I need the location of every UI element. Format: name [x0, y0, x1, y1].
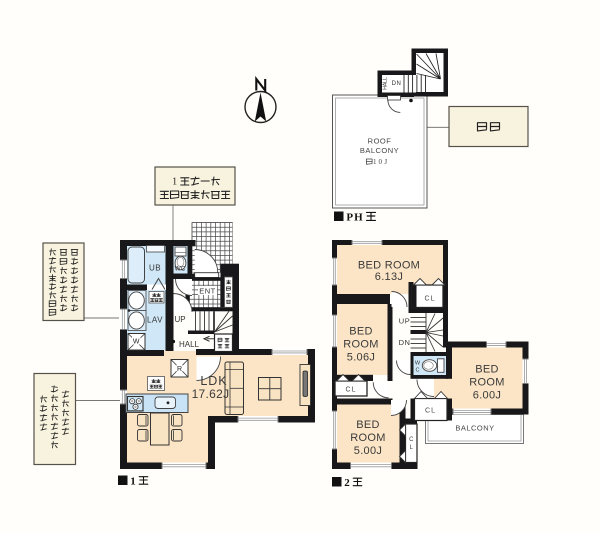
svg-text:1: 1 — [172, 177, 177, 188]
svg-text:BED: BED — [356, 419, 380, 431]
svg-text:ROOF: ROOF — [368, 137, 392, 146]
svg-text:R: R — [177, 366, 182, 373]
svg-text:LDK: LDK — [200, 374, 227, 388]
svg-text:W: W — [133, 339, 140, 346]
svg-text:DN: DN — [392, 81, 402, 87]
svg-text:5.00J: 5.00J — [354, 445, 382, 457]
svg-text:ROOM: ROOM — [350, 432, 385, 444]
svg-text:BED ROOM: BED ROOM — [358, 260, 420, 272]
svg-text:HALL: HALL — [179, 340, 200, 349]
svg-text:6.13J: 6.13J — [375, 271, 403, 283]
svg-text:BALCONY: BALCONY — [360, 146, 399, 155]
svg-text:C: C — [409, 437, 414, 443]
svg-text:DN: DN — [399, 338, 411, 347]
svg-text:CL: CL — [425, 408, 436, 415]
svg-text:UP: UP — [399, 317, 410, 326]
svg-text:CL: CL — [425, 296, 436, 303]
svg-text:J: J — [384, 158, 387, 166]
svg-text:LAV: LAV — [147, 316, 163, 325]
svg-text:ROOM: ROOM — [469, 377, 504, 389]
svg-text:6.00J: 6.00J — [473, 390, 501, 402]
svg-text:17.62J: 17.62J — [192, 387, 230, 401]
svg-text:BED: BED — [349, 326, 373, 338]
svg-text:HALL: HALL — [383, 77, 389, 90]
svg-text:UP: UP — [174, 315, 185, 324]
svg-text:PH: PH — [346, 212, 363, 224]
svg-text:UB: UB — [149, 264, 161, 273]
svg-text:C: C — [416, 368, 420, 374]
svg-text:1: 1 — [373, 158, 377, 166]
svg-text:BALCONY: BALCONY — [455, 424, 494, 433]
svg-text:1: 1 — [130, 476, 136, 488]
svg-text:WC: WC — [175, 266, 186, 273]
svg-text:CL: CL — [346, 387, 357, 394]
svg-text:W: W — [415, 361, 421, 367]
svg-text:2: 2 — [344, 477, 350, 489]
svg-text:5.06J: 5.06J — [347, 352, 375, 364]
svg-text:0: 0 — [379, 158, 383, 166]
svg-text:ENT: ENT — [199, 287, 216, 296]
svg-text:ROOM: ROOM — [343, 339, 378, 351]
svg-text:BED: BED — [475, 364, 499, 376]
